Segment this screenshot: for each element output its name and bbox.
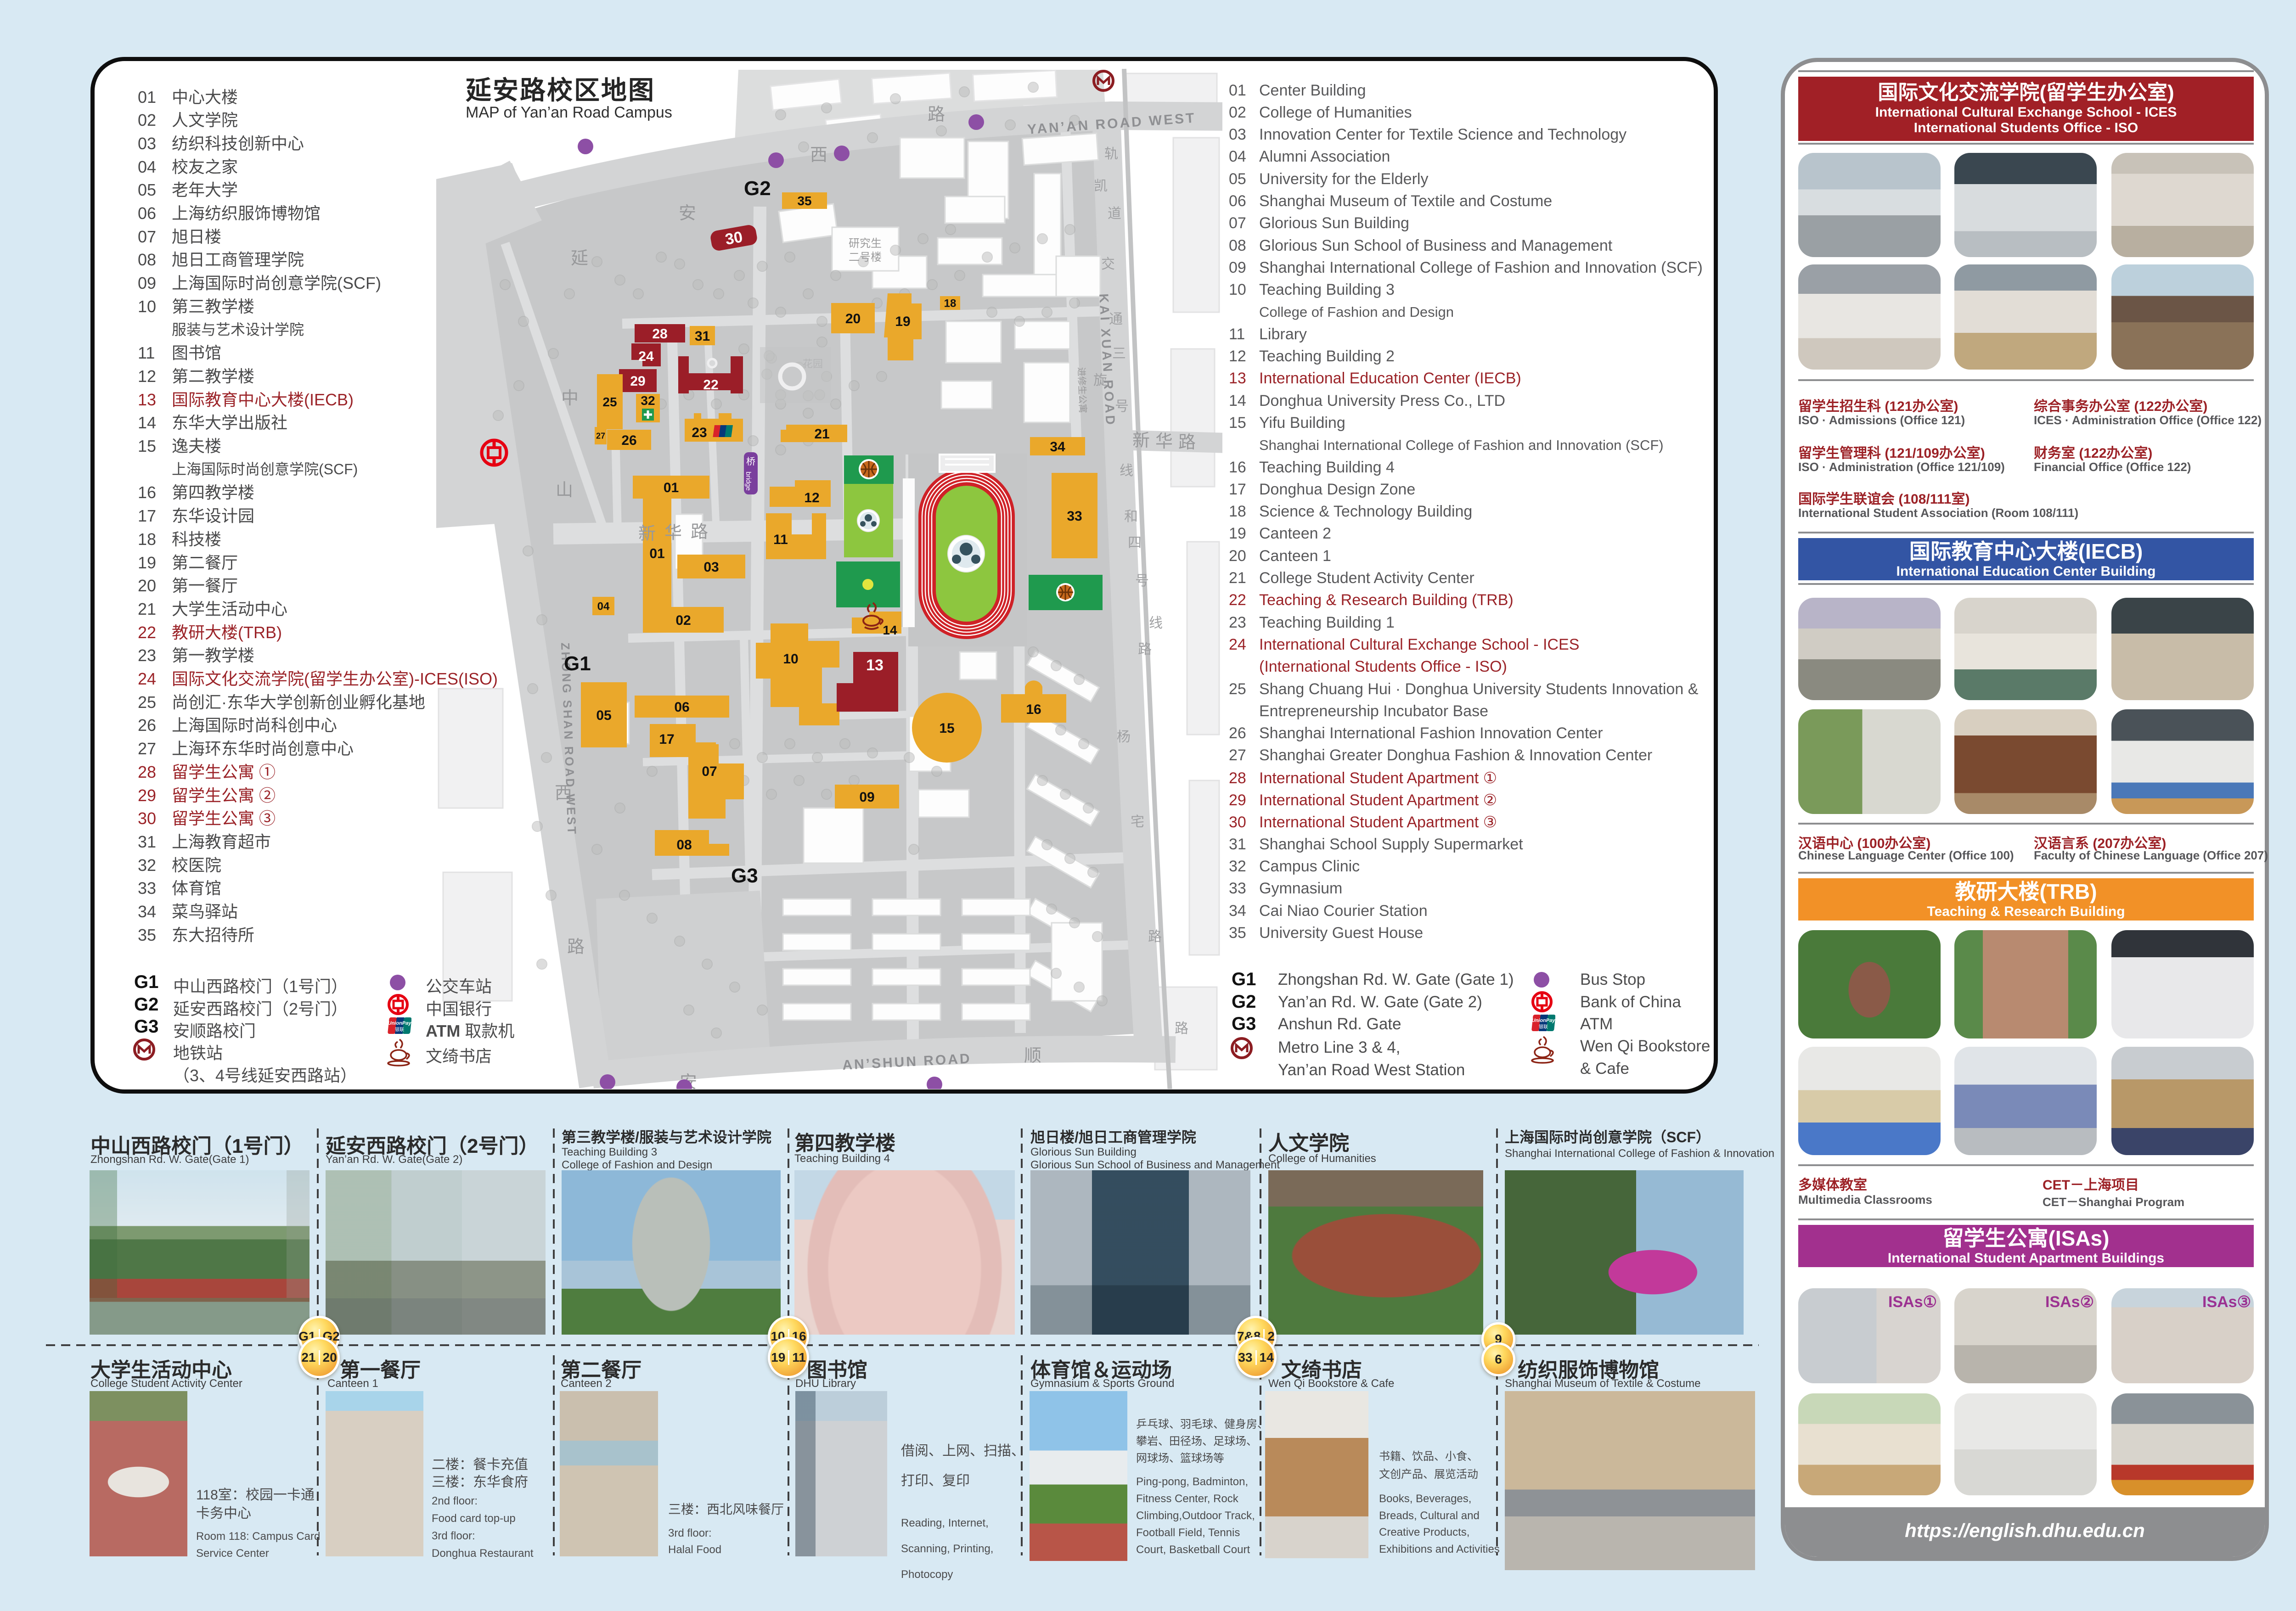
- svg-text:09: 09: [859, 790, 874, 805]
- svg-text:16: 16: [1026, 702, 1041, 717]
- svg-text:路: 路: [1175, 1021, 1188, 1036]
- svg-text:UnionPay: UnionPay: [1532, 1018, 1555, 1023]
- svg-text:10: 10: [783, 651, 798, 667]
- svg-text:20: 20: [845, 311, 861, 326]
- svg-text:32: 32: [641, 393, 655, 408]
- svg-text:二号楼: 二号楼: [849, 251, 882, 264]
- svg-text:G1: G1: [564, 652, 591, 675]
- svg-text:轨: 轨: [1104, 146, 1118, 162]
- svg-text:和: 和: [1124, 509, 1138, 524]
- svg-text:34: 34: [1050, 439, 1065, 455]
- svg-text:21: 21: [814, 427, 829, 442]
- svg-text:25: 25: [602, 395, 617, 409]
- svg-text:07: 07: [702, 764, 717, 779]
- svg-text:15: 15: [939, 721, 954, 736]
- svg-text:路: 路: [567, 937, 585, 957]
- svg-text:08: 08: [676, 837, 692, 853]
- svg-text:30: 30: [724, 228, 744, 248]
- svg-text:银联: 银联: [1539, 1024, 1548, 1030]
- svg-text:华: 华: [1155, 432, 1173, 451]
- svg-text:桥: 桥: [746, 456, 755, 467]
- svg-text:14: 14: [883, 623, 897, 637]
- svg-text:研究生: 研究生: [849, 237, 882, 250]
- svg-text:22: 22: [703, 377, 718, 393]
- svg-text:杨: 杨: [1117, 730, 1131, 745]
- svg-text:UnionPay: UnionPay: [388, 1021, 411, 1026]
- svg-text:延: 延: [571, 249, 588, 268]
- svg-text:11: 11: [773, 532, 788, 547]
- svg-text:银联: 银联: [395, 1027, 404, 1033]
- svg-text:新: 新: [1132, 431, 1150, 450]
- svg-text:12: 12: [804, 490, 819, 505]
- svg-text:28: 28: [652, 326, 667, 342]
- svg-text:交: 交: [1101, 257, 1115, 272]
- svg-text:27: 27: [596, 431, 605, 440]
- svg-text:路: 路: [1138, 642, 1152, 657]
- svg-text:西: 西: [810, 146, 827, 165]
- svg-text:29: 29: [630, 374, 645, 389]
- svg-text:35: 35: [797, 194, 811, 208]
- svg-text:13: 13: [866, 657, 884, 674]
- svg-text:G2: G2: [744, 177, 771, 200]
- svg-text:线: 线: [1149, 616, 1163, 631]
- svg-text:线: 线: [1120, 463, 1133, 478]
- svg-text:四: 四: [1128, 535, 1142, 550]
- svg-text:18: 18: [944, 298, 957, 310]
- svg-text:安: 安: [679, 204, 696, 223]
- svg-text:顺: 顺: [1024, 1046, 1041, 1066]
- svg-text:路: 路: [928, 105, 945, 124]
- svg-text:23: 23: [692, 425, 707, 440]
- svg-text:19: 19: [895, 314, 910, 329]
- svg-text:17: 17: [659, 732, 674, 747]
- svg-text:山: 山: [556, 481, 573, 500]
- svg-text:03: 03: [703, 560, 719, 575]
- svg-text:路: 路: [1178, 433, 1196, 452]
- svg-text:道: 道: [1108, 206, 1121, 221]
- svg-text:05: 05: [596, 708, 611, 723]
- svg-text:06: 06: [674, 700, 689, 715]
- svg-text:花园: 花园: [803, 358, 823, 370]
- svg-text:04: 04: [597, 601, 610, 613]
- svg-text:33: 33: [1067, 509, 1082, 524]
- svg-text:24: 24: [638, 349, 654, 364]
- svg-text:路: 路: [1148, 929, 1162, 944]
- svg-text:路: 路: [691, 522, 708, 542]
- svg-text:26: 26: [621, 433, 636, 448]
- svg-text:G3: G3: [731, 864, 758, 887]
- svg-text:进修生公寓: 进修生公寓: [1076, 367, 1088, 413]
- svg-text:华: 华: [664, 523, 682, 543]
- svg-text:02: 02: [675, 613, 691, 628]
- svg-text:宅: 宅: [1131, 814, 1144, 830]
- svg-text:新: 新: [638, 524, 656, 544]
- svg-text:31: 31: [695, 329, 710, 344]
- svg-text:号: 号: [1135, 573, 1149, 589]
- svg-text:凯: 凯: [1094, 179, 1108, 194]
- svg-text:bridge: bridge: [744, 472, 752, 491]
- svg-text:01: 01: [649, 546, 664, 561]
- svg-text:中: 中: [561, 389, 579, 408]
- svg-text:01: 01: [664, 480, 679, 495]
